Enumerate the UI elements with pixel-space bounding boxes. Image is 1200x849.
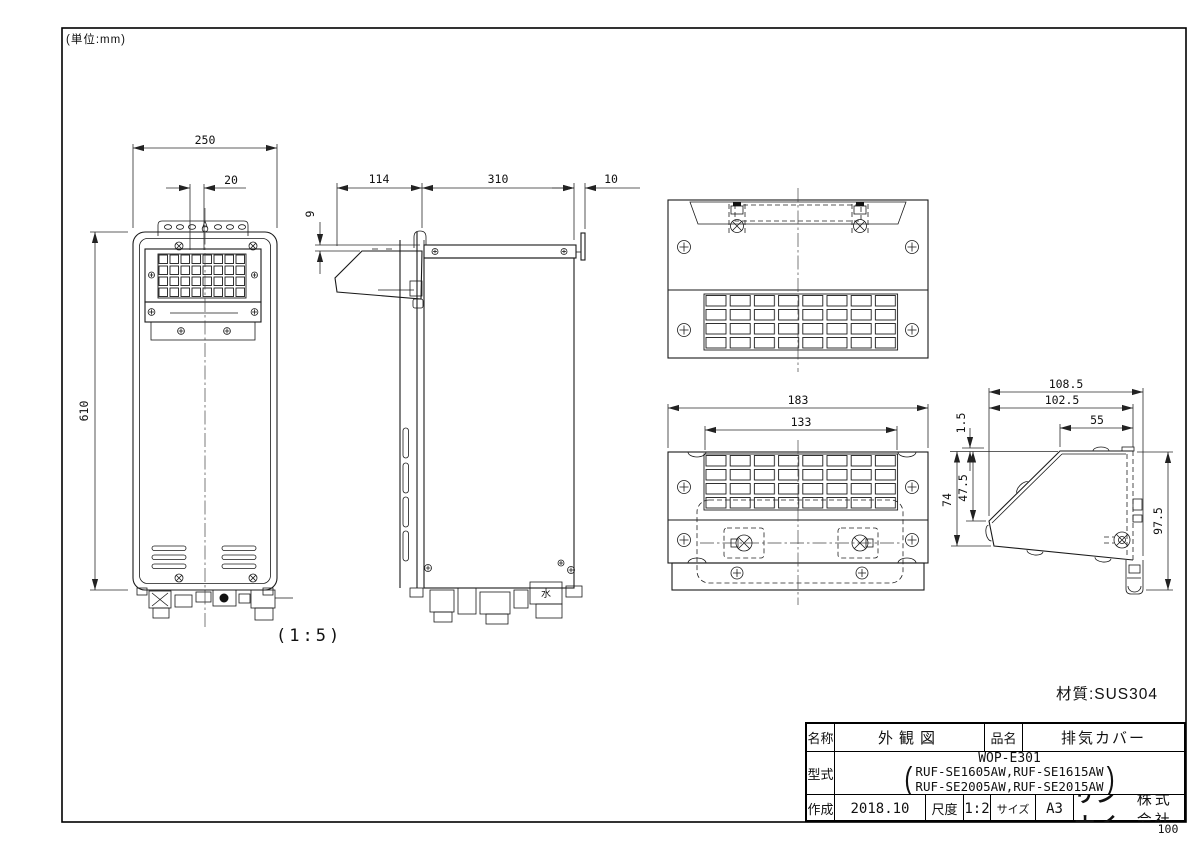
material-note: 材質:SUS304 <box>1028 682 1158 704</box>
dim-side-rear-gap-text: 10 <box>604 172 618 186</box>
dim-detail-body-depth-text: 102.5 <box>1045 393 1080 407</box>
front-piping <box>137 588 293 620</box>
model-line2: RUF-SE1605AW,RUF-SE1615AW <box>915 765 1103 779</box>
title-block-row-name: 名称 外観図 品名 排気カバー <box>807 724 1184 752</box>
created-value: 2018.10 <box>835 795 926 822</box>
item-label: 品名 <box>985 724 1023 752</box>
company-name: リンナイ 株式会社 <box>1074 795 1184 822</box>
dim-side-top-gap-text: 9 <box>303 210 317 217</box>
dim-detail-front-height-text: 47.5 <box>956 474 970 502</box>
detail-bolt <box>1104 532 1130 548</box>
dim-detail-lip: 1.5 <box>950 413 1058 471</box>
company-brand: リンナイ <box>1074 795 1132 822</box>
unit-note: (単位:mm) <box>66 31 126 47</box>
dim-bottom-grille-width-text: 133 <box>791 415 812 429</box>
bottom-view: 183 133 <box>668 393 928 605</box>
dim-bottom-width-text: 183 <box>788 393 809 407</box>
size-value: A3 <box>1036 795 1074 822</box>
scale-value: 1:2 <box>964 795 991 822</box>
title-block: 名称 外観図 品名 排気カバー 型式 WOP-E301 ( RUF-SE1605… <box>805 722 1186 822</box>
sheet-border <box>62 28 1186 822</box>
page-number: 100 <box>1146 822 1190 836</box>
dim-detail-lip-text: 1.5 <box>954 413 968 434</box>
front-vent-slots <box>152 546 256 569</box>
side-view: 水 114 310 10 9 <box>303 172 640 624</box>
dim-detail-top-flat-text: 55 <box>1090 413 1104 427</box>
dim-side-cover-depth-text: 114 <box>369 172 390 186</box>
drawing-sheet: 250 20 610 <box>0 0 1200 849</box>
size-label: サイズ <box>991 795 1036 822</box>
title-block-row-model: 型式 WOP-E301 ( RUF-SE1605AW,RUF-SE1615AW … <box>807 752 1184 795</box>
dim-detail-rear-height-text: 97.5 <box>1151 507 1165 535</box>
detail-bottom-bracket <box>1126 560 1143 594</box>
model-line3: RUF-SE2005AW,RUF-SE2015AW <box>915 780 1103 794</box>
side-louver-slots <box>403 428 409 561</box>
created-label: 作成 <box>807 795 835 822</box>
dim-front-offset-text: 20 <box>224 173 238 187</box>
model-label: 型式 <box>807 752 835 795</box>
model-value: WOP-E301 ( RUF-SE1605AW,RUF-SE1615AW RUF… <box>835 752 1184 795</box>
dim-detail-body-depth: 102.5 <box>989 393 1133 447</box>
dim-side-body-depth-text: 310 <box>488 172 509 186</box>
detail-view: 108.5 102.5 55 1.5 47.5 <box>940 377 1173 594</box>
dim-detail-rear-height: 97.5 <box>1137 452 1173 590</box>
scale-label: 尺度 <box>926 795 964 822</box>
dim-detail-top-flat: 55 <box>1060 413 1133 447</box>
top-view <box>668 188 928 372</box>
company-suffix: 株式会社 <box>1137 795 1184 822</box>
dim-detail-front-height: 47.5 <box>956 452 986 522</box>
item-value: 排気カバー <box>1023 724 1184 752</box>
name-value: 外観図 <box>835 724 985 752</box>
dim-detail-left-height-text: 74 <box>940 493 954 507</box>
front-grille <box>145 249 261 340</box>
water-mark-label: 水 <box>541 588 551 600</box>
dim-front-width-text: 250 <box>195 133 216 147</box>
dim-front-height-text: 610 <box>77 401 91 422</box>
dim-bottom-grille-width: 133 <box>705 415 897 450</box>
view-scale-note: (1:5) <box>276 626 342 646</box>
model-line1: WOP-E301 <box>978 752 1041 765</box>
title-block-row-meta: 作成 2018.10 尺度 1:2 サイズ A3 リンナイ 株式会社 <box>807 795 1184 822</box>
side-cover-profile <box>335 249 423 308</box>
name-label: 名称 <box>807 724 835 752</box>
dim-detail-total-depth-text: 108.5 <box>1049 377 1084 391</box>
model-paren-close: ) <box>1107 763 1115 795</box>
front-view: 250 20 610 <box>77 133 293 628</box>
dim-side-depths: 114 310 10 <box>337 172 640 246</box>
model-paren-open: ( <box>904 763 912 795</box>
top-bracket-bolts <box>729 202 868 234</box>
dim-side-top-gap: 9 <box>303 210 420 274</box>
dim-front-height: 610 <box>77 232 128 590</box>
